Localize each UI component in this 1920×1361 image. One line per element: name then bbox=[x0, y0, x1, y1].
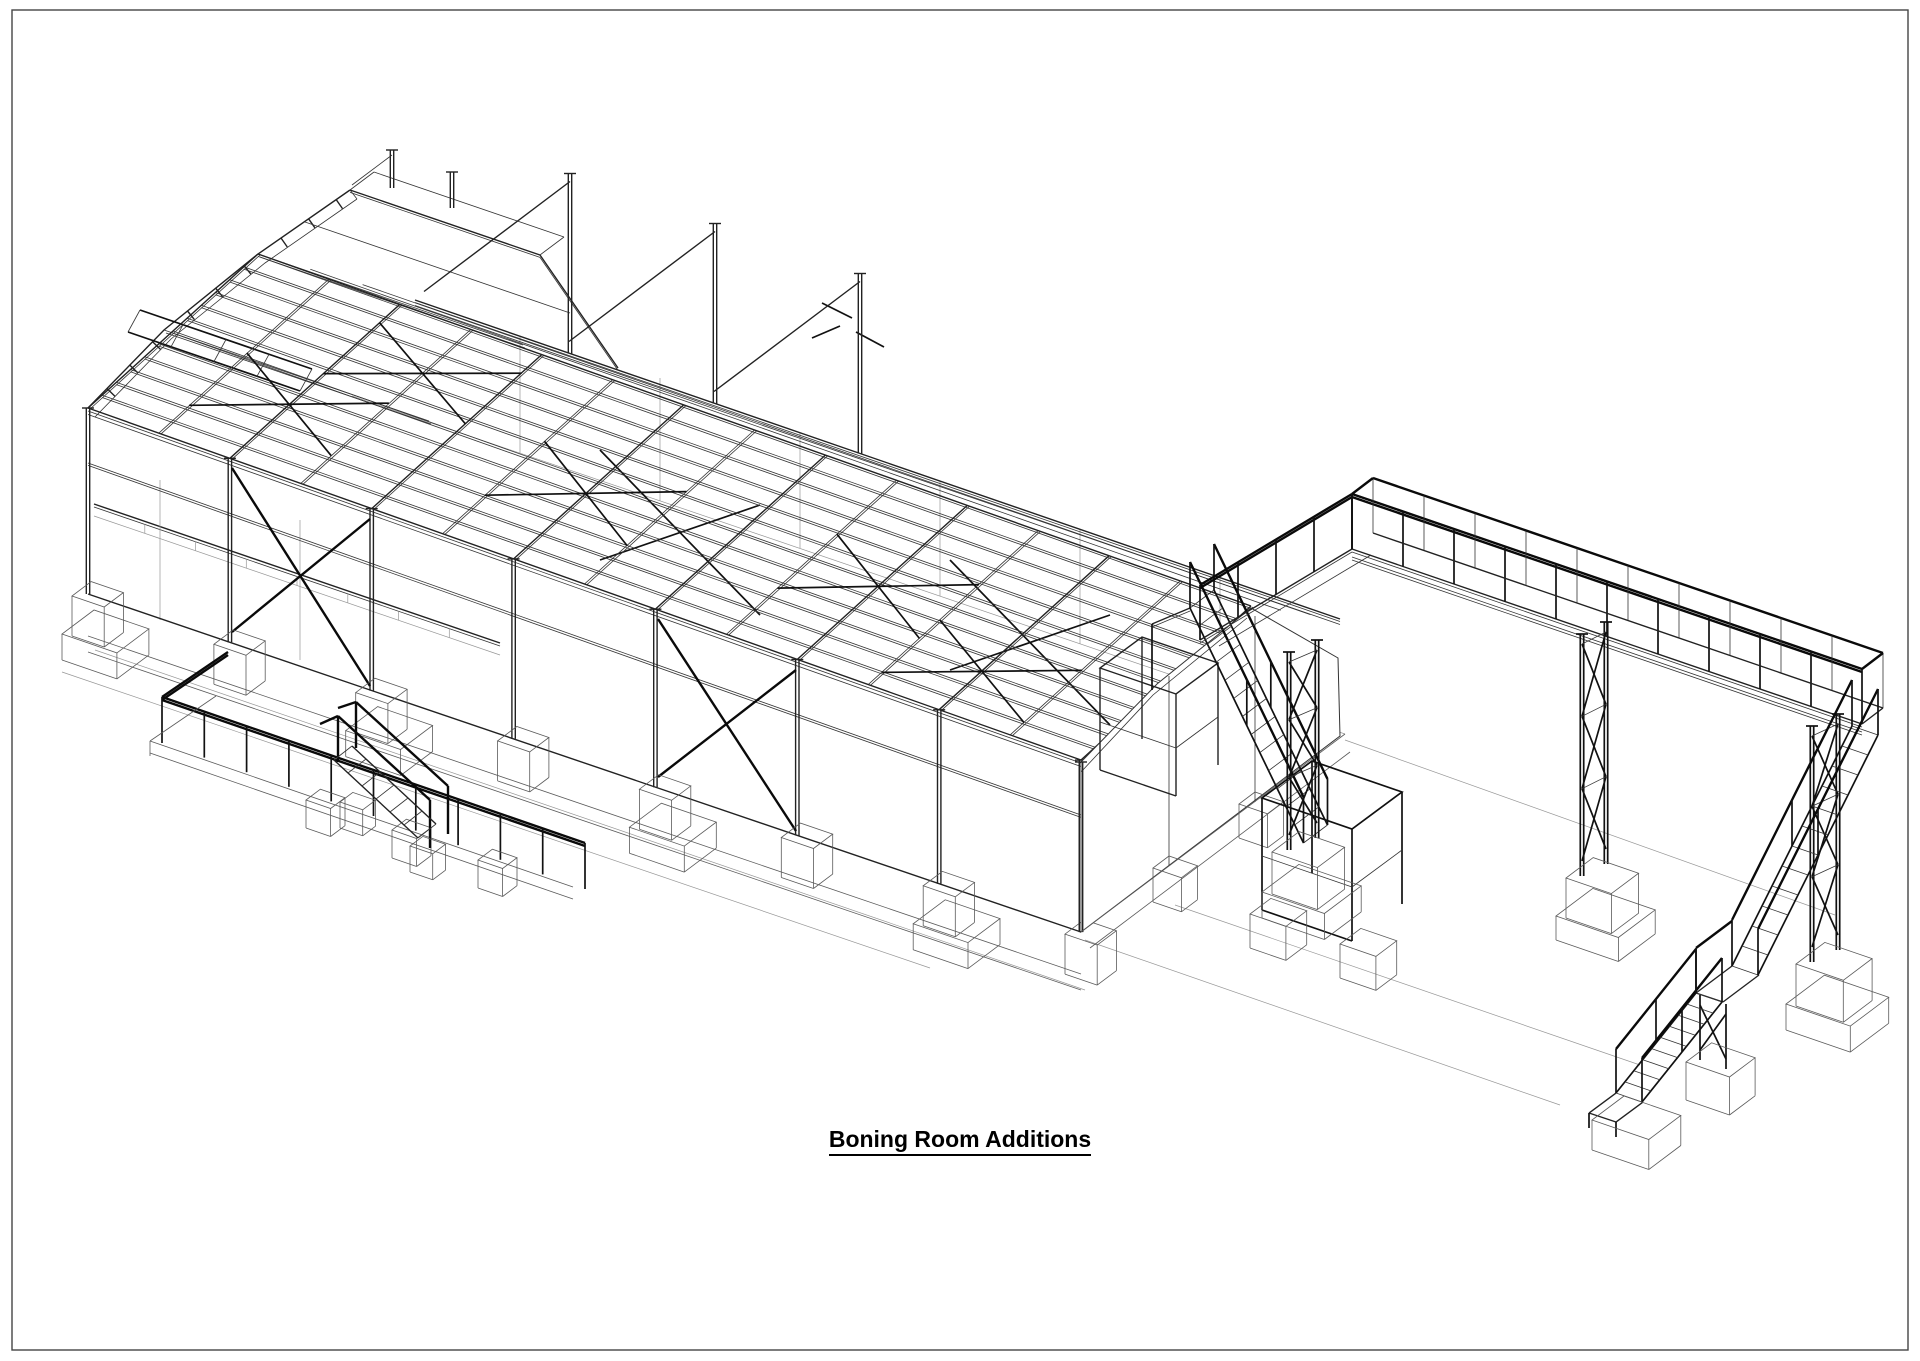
drawing-sheet: Boning Room Additions bbox=[0, 0, 1920, 1361]
drawing-title: Boning Room Additions bbox=[0, 1126, 1920, 1156]
isometric-structural-drawing bbox=[0, 0, 1920, 1361]
drawing-title-text: Boning Room Additions bbox=[829, 1126, 1091, 1156]
